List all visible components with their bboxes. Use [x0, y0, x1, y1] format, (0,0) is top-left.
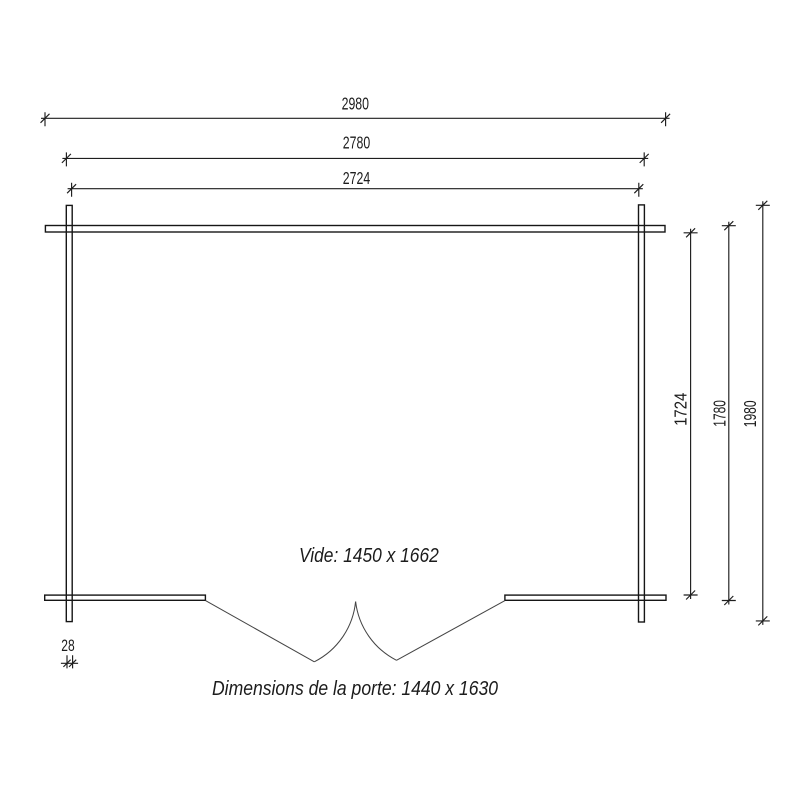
svg-text:Dimensions de la porte: 1440 x: Dimensions de la porte: 1440 x 1630 — [212, 677, 498, 700]
svg-text:1980: 1980 — [740, 400, 760, 427]
svg-text:1724: 1724 — [670, 393, 690, 426]
svg-text:1780: 1780 — [710, 400, 730, 427]
svg-text:28: 28 — [61, 636, 74, 655]
svg-text:2780: 2780 — [343, 133, 371, 153]
svg-text:2980: 2980 — [342, 94, 370, 114]
svg-text:2724: 2724 — [343, 168, 371, 188]
svg-text:Vide: 1450 x 1662: Vide: 1450 x 1662 — [299, 544, 439, 567]
